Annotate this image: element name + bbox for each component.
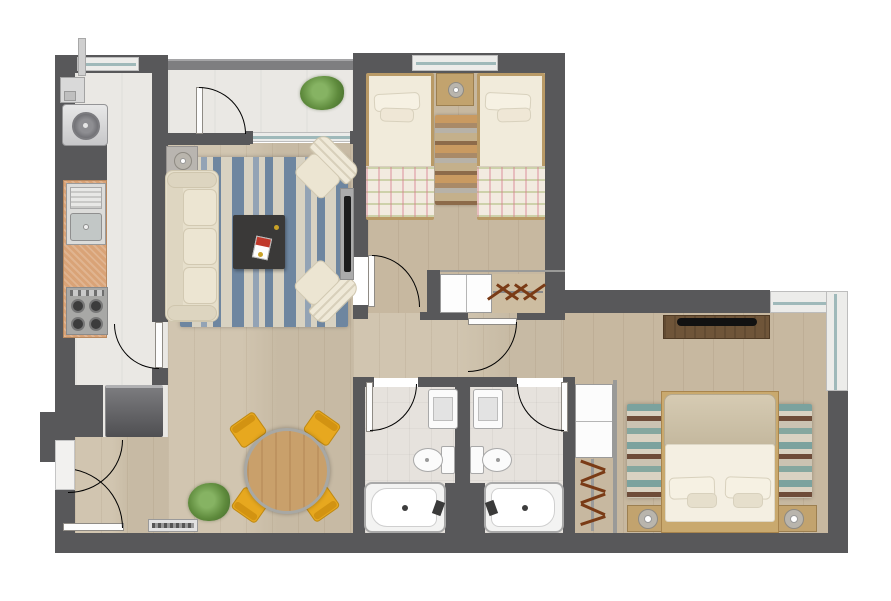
bedroom2-lamp (448, 82, 464, 98)
closet-partition-line (613, 380, 617, 533)
sink-drain (83, 224, 89, 230)
bedroom2-lamp-center (453, 87, 459, 93)
master-bed-frame (661, 391, 779, 533)
bathroom1-toilet-tank (441, 446, 455, 474)
plaid-blanket (477, 166, 545, 217)
coffee-table (233, 215, 285, 269)
terrace-sliding-door (250, 132, 353, 142)
corner-window-right (826, 291, 848, 391)
wall-bedroom2-bottom-a (420, 312, 468, 320)
bedroom2-nightstand (436, 73, 474, 106)
dining-plant (188, 483, 230, 521)
pillow (497, 107, 531, 122)
sofa-cushion (183, 189, 217, 226)
gas-stove (66, 287, 108, 335)
wall-master-top (563, 290, 770, 313)
tub-drain (522, 505, 528, 511)
stove-knobs (70, 290, 104, 296)
table-decor-dot (274, 225, 279, 230)
master-tv-screen (677, 318, 757, 326)
wall-terrace-left (152, 55, 168, 145)
burner (71, 299, 85, 313)
master-lamp-left (638, 509, 658, 529)
sink-basin (433, 397, 453, 421)
bathroom2-bathtub (484, 482, 564, 533)
bathroom1-bathtub (364, 482, 446, 533)
plaid-blanket (366, 166, 434, 217)
bedroom2-window-glazing (416, 62, 496, 65)
magazine (252, 236, 272, 261)
tub-drain (402, 505, 408, 511)
wall-master-right (828, 390, 848, 533)
bedroom2-window (412, 55, 498, 71)
terrace-plant (300, 76, 344, 110)
wall-kitchen-stub (152, 368, 168, 385)
utility-pipe (78, 38, 86, 76)
sliding-door-post-right (350, 131, 357, 144)
dish-drainboard (70, 187, 102, 209)
pillow (733, 493, 763, 508)
wall-between-tubs (445, 483, 485, 533)
sliding-door-glazing (253, 136, 350, 139)
closet-hanger-zone (492, 274, 545, 313)
burner (71, 317, 85, 331)
washing-machine-knob (83, 123, 88, 128)
sofa-armrest-bottom (167, 305, 217, 321)
bathroom2-toilet-bowl (482, 448, 512, 472)
bathroom1-toilet-bowl (413, 448, 443, 472)
kitchen-sink-unit (66, 183, 106, 245)
tv-wall-panel (340, 188, 354, 280)
closet-shelf-divider (466, 275, 467, 312)
floor-vent (148, 519, 198, 532)
table-decor-dot (258, 252, 263, 257)
sliding-door-post-left (246, 131, 253, 144)
floor-plan (0, 0, 891, 601)
master-lamp-left-center (644, 515, 652, 523)
utility-box-inner (64, 91, 76, 101)
closet-back-line (440, 270, 565, 272)
sofa-cushion (183, 228, 217, 265)
wall-bedroom2-right (545, 53, 565, 313)
refrigerator (105, 385, 163, 437)
wall-laundry-kitchen (57, 143, 107, 180)
wall-closet-left (427, 270, 440, 318)
wall-terrace-bottom (168, 133, 250, 145)
kitchen-window-glazing (80, 63, 136, 66)
wall-bottom (55, 533, 848, 553)
sofa (165, 170, 219, 322)
bathroom1-sink (428, 389, 458, 429)
corner-window-right-glazing (834, 294, 837, 390)
table-lamp (174, 152, 192, 170)
floor-vent-grille (152, 523, 194, 528)
magazine-cover (256, 237, 271, 248)
utility-box (60, 77, 85, 103)
toilet-flush (425, 458, 429, 462)
pillow (687, 493, 717, 508)
hall-closet-shelf-divider (576, 421, 612, 422)
master-lamp-right (784, 509, 804, 529)
wall-stub-hall-door (353, 305, 368, 319)
sink-basin (478, 397, 498, 421)
tv-screen (344, 196, 351, 272)
burner (89, 299, 103, 313)
dining-table (244, 428, 330, 514)
closet-shelves (440, 274, 492, 313)
washing-machine (62, 104, 108, 146)
kitchen-window (77, 57, 139, 71)
sofa-armrest-top (167, 172, 217, 188)
bathroom2-sink (473, 389, 503, 429)
sofa-cushion (183, 267, 217, 304)
master-lamp-right-center (790, 515, 798, 523)
pillow (380, 107, 414, 122)
burner (89, 317, 103, 331)
wall-bedroom2-bottom-b (517, 312, 565, 320)
wall-kitchen-bottom-block (57, 385, 103, 437)
terrace-railing (168, 59, 353, 70)
twin-bed-left (366, 73, 434, 220)
folded-blanket (664, 394, 776, 446)
sofa-back (167, 172, 183, 320)
twin-bed-right (477, 73, 545, 220)
table-lamp-center (180, 158, 186, 164)
master-tv-console (663, 315, 770, 339)
toilet-flush (496, 458, 500, 462)
hall-closet-shelves (575, 384, 613, 458)
